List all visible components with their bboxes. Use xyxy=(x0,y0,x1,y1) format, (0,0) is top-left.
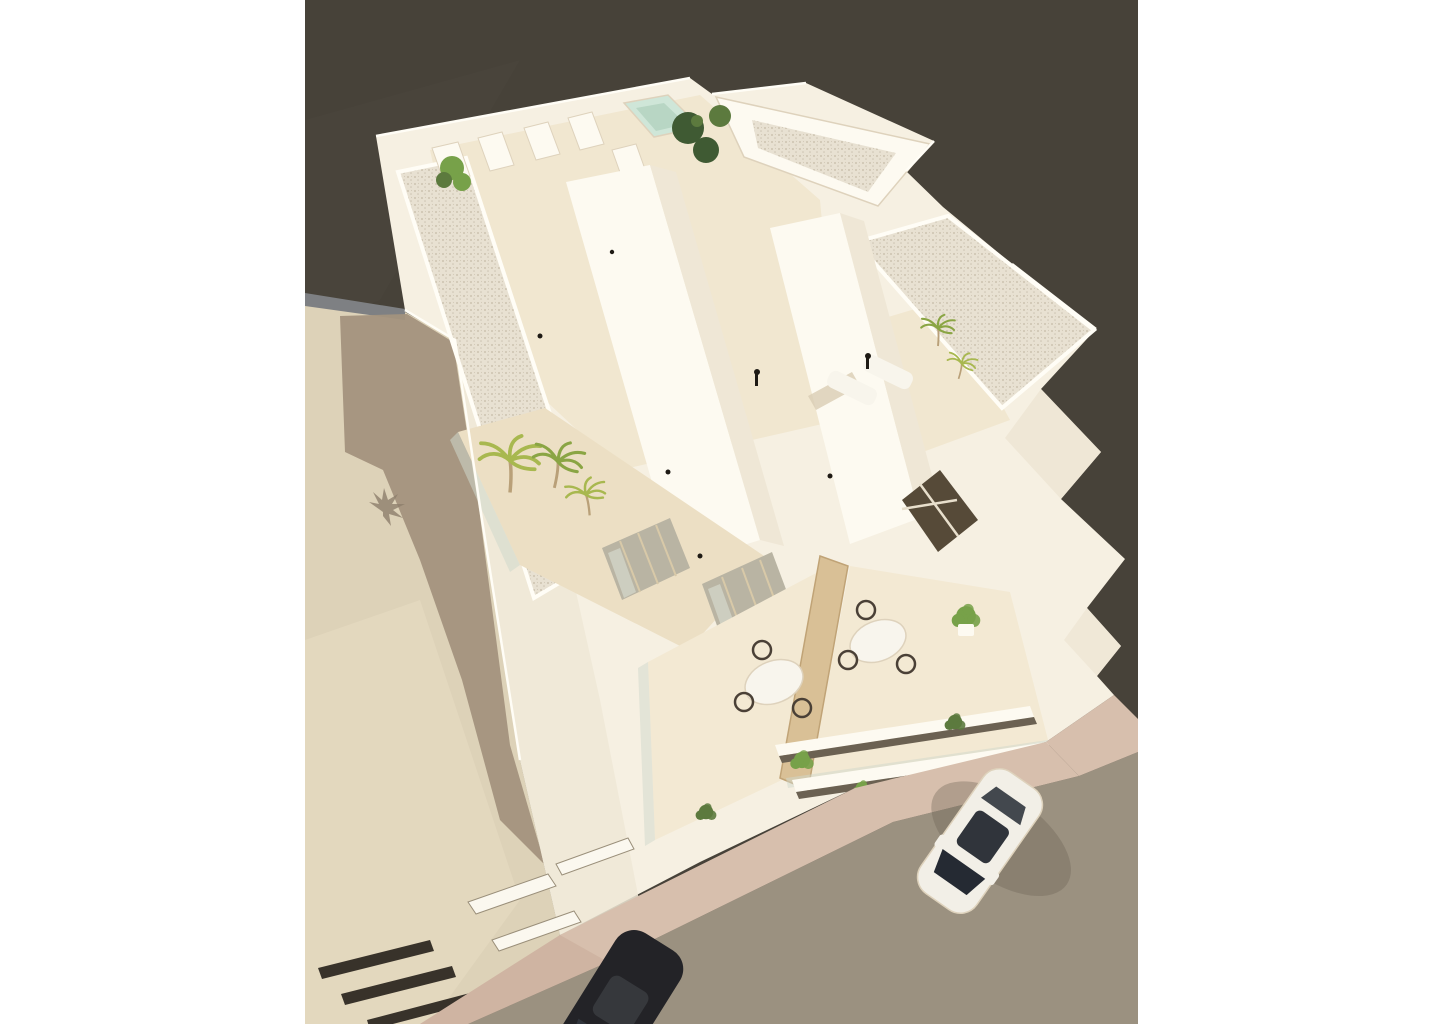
margin-left xyxy=(0,0,305,1024)
render-canvas xyxy=(0,0,1440,1024)
margin-right xyxy=(1138,0,1440,1024)
architectural-render xyxy=(0,0,1440,1024)
